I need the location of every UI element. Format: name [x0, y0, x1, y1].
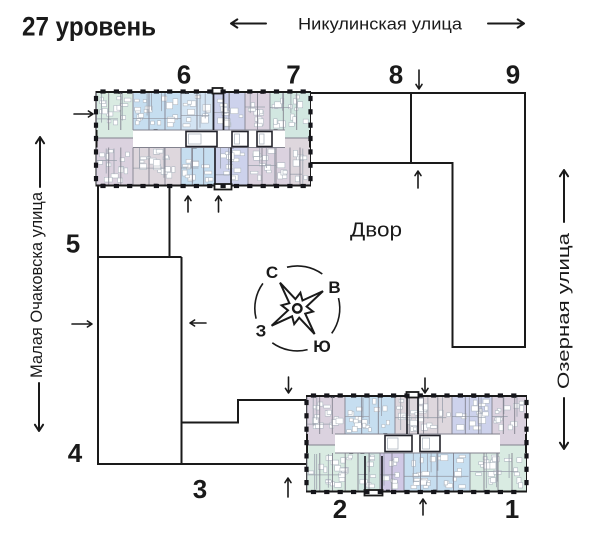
- svg-text:8: 8: [389, 60, 403, 90]
- svg-text:3: 3: [193, 474, 207, 504]
- svg-text:7: 7: [286, 60, 300, 90]
- svg-text:З: З: [256, 322, 267, 341]
- svg-text:4: 4: [68, 438, 83, 468]
- svg-text:2: 2: [333, 494, 347, 524]
- svg-text:5: 5: [66, 229, 80, 259]
- svg-text:Малая Очаковска улица: Малая Очаковска улица: [27, 191, 46, 378]
- svg-text:В: В: [328, 278, 340, 297]
- svg-text:Ю: Ю: [313, 337, 331, 356]
- svg-text:9: 9: [506, 60, 520, 90]
- svg-text:1: 1: [505, 494, 519, 524]
- svg-text:С: С: [266, 263, 278, 282]
- svg-text:Никулинская улица: Никулинская улица: [298, 15, 463, 34]
- svg-text:27 уровень: 27 уровень: [22, 12, 156, 42]
- svg-text:Двор: Двор: [350, 220, 402, 242]
- svg-text:6: 6: [177, 60, 191, 90]
- svg-text:Озерная улица: Озерная улица: [554, 232, 573, 389]
